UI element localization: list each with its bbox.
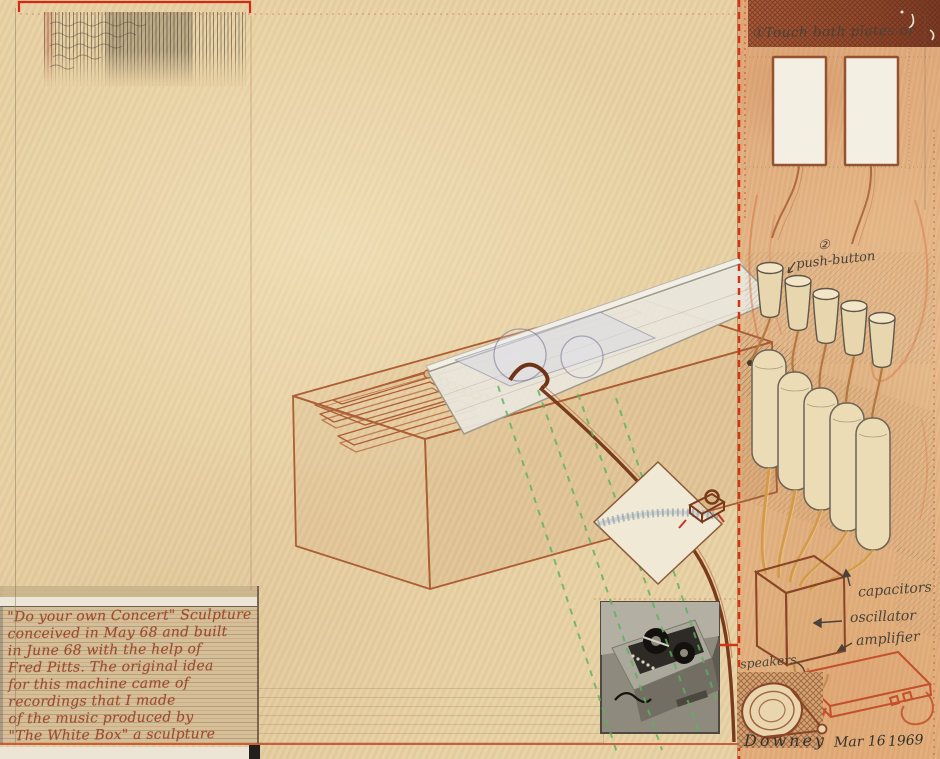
signature-year: 1969 xyxy=(888,732,924,750)
artwork-canvas: "Do your own Concert" Sculpture conceive… xyxy=(0,0,940,759)
ruled-lines-extension xyxy=(257,688,604,743)
signal-cable xyxy=(510,365,734,742)
connector-block xyxy=(490,362,532,376)
machine-right-face xyxy=(425,342,777,589)
photo-reel xyxy=(673,642,695,664)
hatch-block-fade xyxy=(44,12,246,86)
red-bottom-rule xyxy=(0,743,737,745)
machine-top-face xyxy=(293,299,772,439)
black-corner-mark xyxy=(249,745,260,759)
bottom-white-strip xyxy=(0,747,256,759)
tray xyxy=(315,340,590,425)
foot-switch xyxy=(690,491,724,523)
label-push-button-number: ② xyxy=(818,238,830,253)
lid-edge-cap xyxy=(426,258,744,374)
caption-top-strip xyxy=(0,586,257,597)
photo-collage xyxy=(594,599,738,733)
photo-wire xyxy=(615,693,651,702)
sliding-lid xyxy=(426,258,776,434)
reel-window xyxy=(455,312,655,386)
caption-line: conceived in May 68 and built xyxy=(7,624,257,644)
label-touch-plates: ①Touch both plates or xyxy=(752,23,916,42)
photo-reel xyxy=(643,628,669,654)
lid-rail xyxy=(333,309,641,404)
blue-band xyxy=(598,512,718,524)
machine-front-face xyxy=(293,396,430,589)
caption-text: "Do your own Concert" Sculpture conceive… xyxy=(0,607,259,746)
photo-knob-dots xyxy=(631,654,654,669)
label-oscillator: oscillator xyxy=(850,608,917,626)
kite-note xyxy=(594,462,724,584)
signature-date: Mar 16 xyxy=(834,733,886,751)
caption-white-strip xyxy=(0,597,257,607)
caption-block: "Do your own Concert" Sculpture conceive… xyxy=(0,586,259,744)
tape-reels xyxy=(494,329,603,381)
artist-signature: Downey xyxy=(744,731,827,750)
machine-drawing xyxy=(293,299,777,589)
tray-panels xyxy=(320,382,478,452)
knobs xyxy=(424,370,488,402)
cable-hook xyxy=(510,365,548,388)
